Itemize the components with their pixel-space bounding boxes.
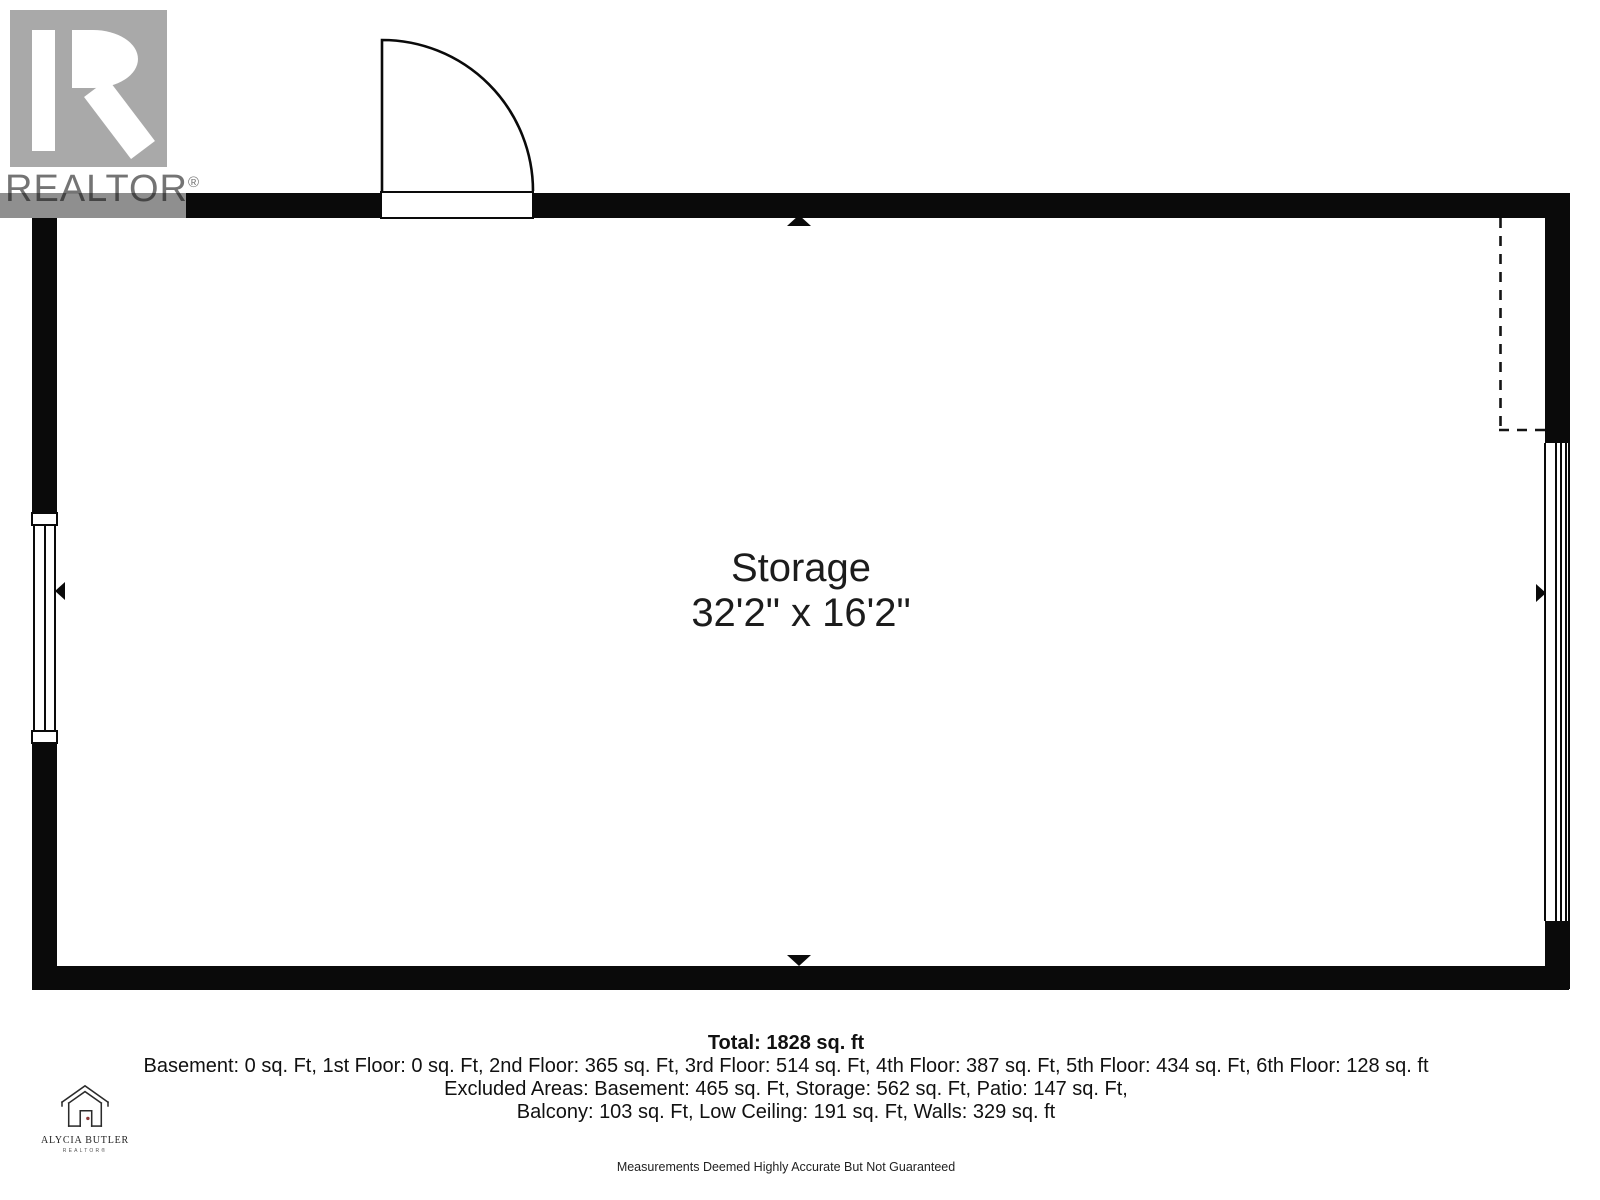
right-window-line xyxy=(1560,443,1562,921)
agent-logo: ALYCIA BUTLER REALTOR® xyxy=(35,1082,135,1154)
realtor-wordmark-text: REALTOR xyxy=(5,168,188,210)
right-wall-upper xyxy=(1545,193,1570,443)
room-name: Storage xyxy=(32,546,1570,591)
door-handle-dot xyxy=(86,1117,89,1120)
summary-floors-line: Basement: 0 sq. Ft, 1st Floor: 0 sq. Ft,… xyxy=(0,1055,1572,1078)
right-window-line xyxy=(1565,443,1567,921)
disclaimer-text: Measurements Deemed Highly Accurate But … xyxy=(0,1160,1572,1174)
registered-mark: ® xyxy=(188,174,199,191)
room-dimensions: 32'2" x 16'2" xyxy=(32,591,1570,636)
agent-title: REALTOR® xyxy=(35,1148,135,1154)
agent-name: ALYCIA BUTLER xyxy=(35,1135,135,1146)
realtor-logo-icon xyxy=(10,10,167,167)
area-summary: Total: 1828 sq. ft Basement: 0 sq. Ft, 1… xyxy=(0,1032,1572,1124)
south-marker-icon xyxy=(787,955,811,966)
dashed-area-outline xyxy=(1499,218,1546,432)
left-window-cap-bottom xyxy=(31,730,58,744)
summary-excluded-line1: Excluded Areas: Basement: 465 sq. Ft, St… xyxy=(0,1078,1572,1101)
right-window-line xyxy=(1555,443,1557,921)
left-wall-upper xyxy=(32,193,57,513)
bottom-wall xyxy=(32,966,1569,990)
north-marker-icon xyxy=(787,215,811,226)
summary-total: Total: 1828 sq. ft xyxy=(0,1032,1572,1055)
summary-excluded-line2: Balcony: 103 sq. Ft, Low Ceiling: 191 sq… xyxy=(0,1101,1572,1124)
room-label: Storage 32'2" x 16'2" xyxy=(32,546,1570,636)
realtor-wordmark: REALTOR® xyxy=(5,170,205,208)
house-icon xyxy=(56,1082,114,1128)
door-opening xyxy=(380,191,534,219)
right-window-outer-line xyxy=(1568,443,1570,989)
right-wall-lower xyxy=(1545,921,1569,990)
right-window-line xyxy=(1544,443,1546,921)
door-swing-icon xyxy=(379,36,537,194)
right-window xyxy=(1544,443,1570,921)
floor-plan-page: REALTOR® Storage 32'2" x 16'2" Total: 18… xyxy=(0,0,1600,1200)
left-wall-lower xyxy=(32,743,57,990)
